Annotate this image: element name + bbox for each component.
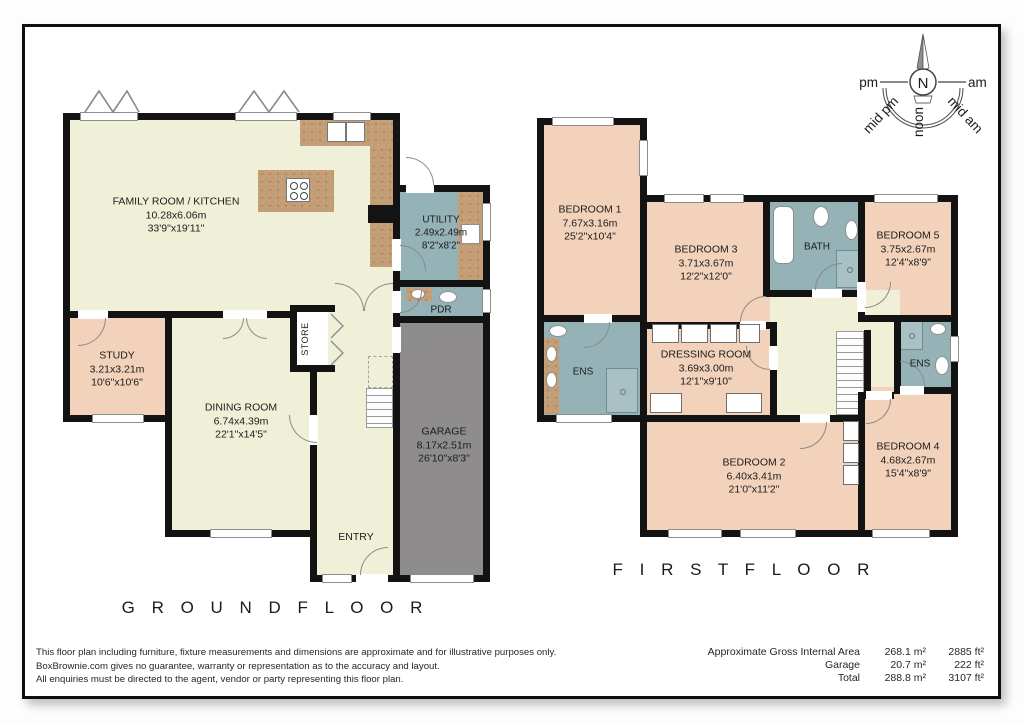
label-dining: DINING ROOM 6.74x4.39m 22'1"x14'5" (205, 402, 277, 443)
hob-icon (286, 178, 310, 202)
basin-icon (546, 372, 557, 388)
room-name: PDR (430, 304, 451, 317)
basin-icon (930, 323, 946, 335)
label-bedroom3: BEDROOM 3 3.71x3.67m 12'2"x12'0" (674, 244, 737, 285)
window (664, 194, 704, 203)
area-row: Total 288.8 m² 3107 ft² (660, 672, 984, 685)
room-name: BEDROOM 5 (876, 230, 939, 244)
room-dim-metric: 3.21x3.21m (90, 363, 145, 377)
label-bedroom1: BEDROOM 1 7.67x3.16m 25'2"x10'4" (558, 204, 621, 245)
sink-icon (346, 122, 365, 142)
closet-icon (843, 443, 859, 463)
window (740, 529, 796, 538)
compass: N pm am mid pm mid am noon (858, 30, 988, 135)
wall (483, 185, 490, 582)
room-dim-imperial: 12'4"x8'9" (876, 257, 939, 271)
wall (310, 372, 317, 582)
room-name: BATH (804, 241, 830, 254)
window (322, 574, 352, 583)
window (482, 289, 491, 313)
room-dim-metric: 6.74x4.39m (205, 415, 277, 429)
compass-needle-icon (917, 34, 923, 70)
floorplan-page: FAMILY ROOM / KITCHEN 10.28x6.06m 33'9"x… (0, 0, 1024, 723)
label-ensuite-right: ENS (910, 358, 931, 371)
disclaimer-line: BoxBrownie.com gives no guarantee, warra… (36, 660, 556, 674)
room-dim-metric: 3.71x3.67m (674, 257, 737, 271)
disclaimer-line: This floor plan including furniture, fix… (36, 646, 556, 660)
stairs-ground (366, 388, 393, 428)
disclaimer-line: All enquiries must be directed to the ag… (36, 673, 556, 687)
door-gap (900, 386, 924, 395)
area-label: Total (660, 672, 860, 685)
area-row: Garage 20.7 m² 222 ft² (660, 659, 984, 672)
door-gap (406, 184, 434, 193)
wardrobe-icon (710, 324, 737, 343)
wall (864, 330, 871, 392)
wall (368, 205, 400, 223)
shower-icon (606, 368, 638, 413)
area-metric: 268.1 m² (860, 646, 926, 659)
room-dim-imperial: 22'1"x14'5" (205, 429, 277, 443)
room-dim-metric: 6.40x3.41m (722, 470, 785, 484)
toilet-icon (935, 356, 949, 375)
room-dim-metric: 8.17x2.51m (417, 439, 472, 453)
shower-icon (898, 320, 923, 350)
compass-base (914, 96, 932, 103)
room-dim-metric: 7.67x3.16m (558, 217, 621, 231)
room-name: ENS (910, 358, 931, 371)
room-dim-imperial: 12'1"x9'10" (661, 376, 751, 390)
room-name: STUDY (90, 350, 145, 364)
label-pdr: PDR (430, 304, 451, 317)
room-dim-imperial: 8'2"x8'2" (415, 240, 467, 253)
door-gap (769, 346, 778, 370)
caption-first-floor: F I R S T F L O O R (613, 560, 876, 580)
compass-north-label: N (918, 75, 929, 92)
wall (400, 316, 490, 323)
compass-mid-am-label: mid am (945, 94, 986, 137)
bifold-door-icon (329, 313, 346, 367)
wall (640, 415, 865, 422)
area-imperial: 2885 ft² (926, 646, 984, 659)
compass-am-label: am (968, 75, 987, 90)
room-name: BEDROOM 4 (876, 441, 939, 455)
caption-ground-floor: G R O U N D F L O O R (122, 598, 429, 618)
toilet-icon (439, 291, 457, 303)
closet-icon (843, 465, 859, 485)
room-dim-imperial: 15'4"x8'9" (876, 468, 939, 482)
window-opening-icon (238, 88, 300, 114)
room-name: FAMILY ROOM / KITCHEN (113, 196, 240, 210)
room-dim-metric: 4.68x2.67m (876, 454, 939, 468)
wall (770, 322, 777, 422)
room-name: BEDROOM 1 (558, 204, 621, 218)
room-name: ENTRY (338, 531, 373, 545)
compass-mid-pm-label: mid pm (860, 94, 901, 137)
window (950, 336, 959, 362)
area-label: Garage (660, 659, 860, 672)
stairs-dashed (368, 356, 393, 388)
window (333, 112, 371, 121)
wardrobe-icon (726, 393, 762, 413)
room-dim-metric: 3.69x3.00m (661, 362, 751, 376)
window (552, 117, 614, 126)
window (872, 529, 930, 538)
wall (858, 399, 865, 537)
label-family-kitchen: FAMILY ROOM / KITCHEN 10.28x6.06m 33'9"x… (113, 196, 240, 237)
room-dim-imperial: 33'9"x19'11" (113, 223, 240, 237)
door-gap (356, 574, 388, 583)
room-name: DINING ROOM (205, 402, 277, 416)
wall (858, 315, 958, 322)
window (410, 574, 474, 583)
window (639, 140, 648, 176)
label-bedroom5: BEDROOM 5 3.75x2.67m 12'4"x8'9" (876, 230, 939, 271)
room-dim-imperial: 26'10"x8'3" (417, 453, 472, 467)
label-bath: BATH (804, 241, 830, 254)
room-dim-imperial: 21'0"x11'2" (722, 484, 785, 498)
window (556, 414, 612, 423)
window-opening-icon (84, 88, 140, 114)
label-utility: UTILITY 2.49x2.49m 8'2"x8'2" (415, 214, 467, 253)
door-gap (812, 289, 842, 298)
toilet-icon (549, 325, 567, 337)
area-metric: 20.7 m² (860, 659, 926, 672)
wall (951, 195, 958, 537)
label-store: STORE (300, 322, 310, 355)
wall (290, 305, 297, 372)
wall (63, 113, 70, 422)
window (92, 414, 144, 423)
compass-needle-icon (923, 34, 929, 70)
bathtub-icon (773, 206, 794, 264)
basin-icon (845, 220, 858, 240)
room-name: ENS (573, 366, 594, 379)
sink-icon (327, 122, 346, 142)
area-imperial: 222 ft² (926, 659, 984, 672)
area-row: Approximate Gross Internal Area 268.1 m²… (660, 646, 984, 659)
area-table: Approximate Gross Internal Area 268.1 m²… (660, 646, 984, 685)
label-bedroom4: BEDROOM 4 4.68x2.67m 15'4"x8'9" (876, 441, 939, 482)
room-dim-imperial: 25'2"x10'4" (558, 231, 621, 245)
window (482, 203, 491, 241)
disclaimer-text: This floor plan including furniture, fix… (36, 646, 556, 687)
wall (537, 118, 544, 422)
room-dim-metric: 2.49x2.49m (415, 227, 467, 240)
label-study: STUDY 3.21x3.21m 10'6"x10'6" (90, 350, 145, 391)
toilet-icon (813, 206, 829, 227)
room-dim-metric: 3.75x2.67m (876, 243, 939, 257)
area-imperial: 3107 ft² (926, 672, 984, 685)
wardrobe-icon (739, 324, 760, 343)
basin-icon (546, 346, 557, 362)
room-name: DRESSING ROOM (661, 349, 751, 363)
room-dim-metric: 10.28x6.06m (113, 209, 240, 223)
room-dim-imperial: 12'2"x12'0" (674, 271, 737, 285)
room-name: BEDROOM 2 (722, 457, 785, 471)
label-ensuite-left: ENS (573, 366, 594, 379)
label-dressing: DRESSING ROOM 3.69x3.00m 12'1"x9'10" (661, 349, 751, 390)
room-name: GARAGE (417, 426, 472, 440)
wardrobe-icon (650, 393, 682, 413)
wall (400, 280, 490, 287)
closet-icon (843, 421, 859, 441)
area-metric: 288.8 m² (860, 672, 926, 685)
wardrobe-icon (652, 324, 679, 343)
compass-pm-label: pm (859, 75, 878, 90)
area-label: Approximate Gross Internal Area (660, 646, 860, 659)
window (710, 194, 744, 203)
label-bedroom2: BEDROOM 2 6.40x3.41m 21'0"x11'2" (722, 457, 785, 498)
wall (763, 195, 770, 297)
compass-noon-label: noon (911, 107, 926, 137)
window (874, 194, 938, 203)
room-dim-imperial: 10'6"x10'6" (90, 377, 145, 391)
room-name: UTILITY (415, 214, 467, 227)
wall (165, 422, 172, 537)
label-entry: ENTRY (338, 531, 373, 545)
label-garage: GARAGE 8.17x2.51m 26'10"x8'3" (417, 426, 472, 467)
room-name: BEDROOM 3 (674, 244, 737, 258)
wall (165, 318, 172, 422)
wardrobe-icon (681, 324, 708, 343)
window (210, 529, 272, 538)
window (668, 529, 722, 538)
